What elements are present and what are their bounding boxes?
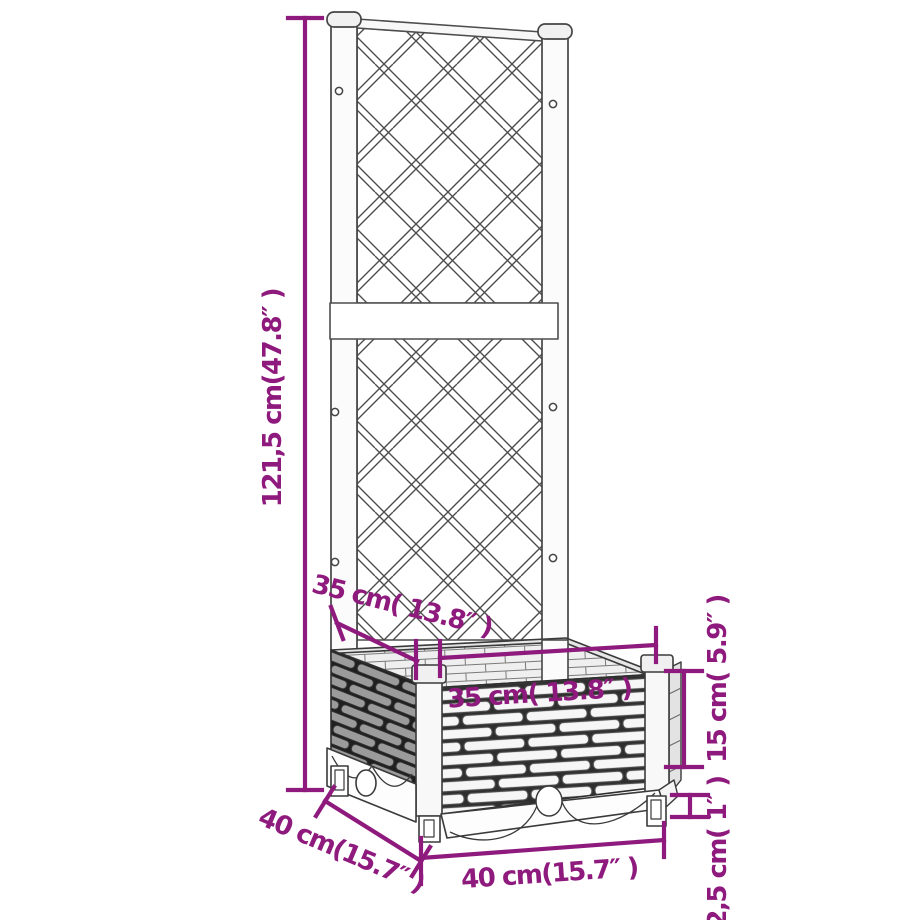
dim-trellis-height [288,18,322,790]
trellis-lattice-upper [357,28,545,303]
trellis-middle-band [330,303,558,339]
label-box-height: 15 cm( 5.9″ ) [703,595,733,763]
label-outer-width: 40 cm(15.7″ ) [460,853,638,895]
label-trellis-height: 121,5 cm(47.8″ ) [258,289,288,507]
base-center-hole [536,786,562,816]
diagram-canvas: 121,5 cm(47.8″ ) 35 cm( 13.8″ ) 35 cm( 1… [0,0,920,920]
label-foot-height: 2,5 cm( 1″ ) [703,776,733,920]
planter-dimension-diagram: 121,5 cm(47.8″ ) 35 cm( 13.8″ ) 35 cm( 1… [0,0,920,920]
planter-right-wall [669,662,681,795]
planter-drawing [327,638,681,842]
